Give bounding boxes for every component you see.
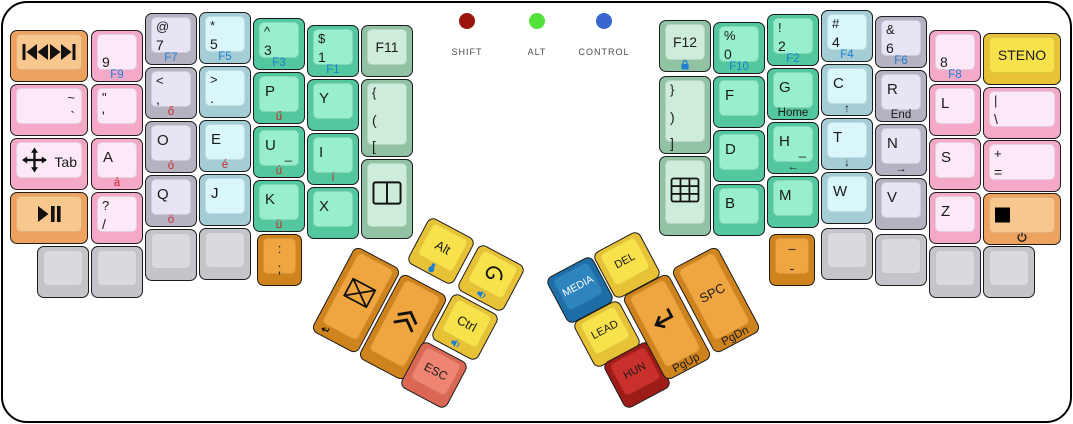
key-b[interactable]: B [713,184,765,236]
key-blank-r3-cap [827,232,867,268]
key-l[interactable]: L [929,84,981,136]
prev-track-icon [22,44,49,60]
key-8[interactable]: 8F8 [929,30,981,82]
key-period-label: > [210,73,218,86]
key-plus-label: = [994,165,1002,179]
key-comma-label: < [156,74,164,87]
key-f11[interactable]: F11 [361,25,413,77]
key-c-label: ↑ [822,104,872,116]
key-g[interactable]: GHome [767,68,819,120]
key-h-label: _ [799,144,806,157]
key-blank-r5[interactable] [929,246,981,298]
key-s-label: S [941,150,951,165]
key-caret-3[interactable]: ^3F3 [253,18,305,70]
key-percent-0-label: % [724,29,736,42]
key-x[interactable]: X [307,187,359,239]
key-tilde-label: ~ [67,91,75,104]
key-at-7-label: F7 [146,53,196,65]
alt-led [529,13,545,29]
key-colon-semicolon[interactable]: :; [257,234,302,286]
key-braces-close[interactable]: })] [659,76,711,154]
key-blank-l1[interactable] [91,246,143,298]
control-led [596,13,612,29]
indicator-alt: ALT [502,13,572,57]
key-keypad[interactable] [659,156,711,236]
key-pipe[interactable]: |\ [983,87,1061,139]
key-a-label: á [92,178,142,190]
key-media-prev-next[interactable] [10,30,88,82]
key-i[interactable]: Ií [307,133,359,185]
key-s[interactable]: S [929,138,981,190]
key-d-label: D [725,142,736,157]
window-split-icon [373,181,402,205]
key-v[interactable]: V [875,178,927,230]
key-f12-label: F12 [660,35,710,49]
key-blank-r3[interactable] [821,228,873,280]
key-u[interactable]: U_ú [253,126,305,178]
key-star-5-label: 5 [210,37,218,51]
key-at-7-label: 7 [156,38,164,52]
indicator-shift: SHIFT [432,13,502,57]
key-dollar-1-label: F1 [308,65,358,77]
key-n-label: N [887,136,898,151]
key-caret-3-label: F3 [254,58,304,70]
key-j-label: J [211,186,219,201]
key-y[interactable]: Y [307,79,359,131]
key-r-label: R [887,82,898,97]
key-blank-r4-cap [881,238,921,274]
key-u-label: U [265,138,276,153]
key-v-label: V [887,190,897,205]
key-9-label: 9 [102,55,110,69]
key-star-5[interactable]: *5F5 [199,12,251,64]
key-8-label: 8 [940,55,948,69]
indicator-control: CONTROL [569,13,639,57]
key-n[interactable]: N→ [875,124,927,176]
key-comma-label: , [156,92,160,106]
key-c-label: C [833,76,844,91]
key-o-label: ó [146,161,196,173]
key-tab-label: Tab [54,155,77,169]
move-icon [22,148,47,173]
next-track-icon [49,44,76,60]
key-j[interactable]: J [199,174,251,226]
key-e[interactable]: Eé [199,120,251,172]
key-window-split[interactable] [361,159,413,239]
key-question[interactable]: ?/ [91,192,143,244]
key-z-label: Z [941,204,950,219]
key-blank-r6-cap [989,250,1029,286]
key-9[interactable]: 9F9 [91,30,143,82]
key-amp-6[interactable]: &6F6 [875,16,927,68]
key-b-label: B [725,196,735,211]
key-pipe-label: \ [994,112,998,126]
key-braces-open-label: [ [372,139,376,153]
shift-led [459,13,475,29]
key-exclaim-2-label: F2 [768,54,818,66]
key-k[interactable]: Kü [253,180,305,232]
control-led-label: CONTROL [569,47,639,57]
key-f[interactable]: F [713,76,765,128]
key-colon-semicolon-label: ; [258,261,301,275]
key-quote-label: " [102,91,107,104]
key-quote-label: ' [102,109,105,123]
key-r[interactable]: REnd [875,70,927,122]
key-braces-close-label: ] [670,136,674,150]
key-g-label: Home [768,108,818,120]
key-dollar-1[interactable]: $1F1 [307,25,359,77]
key-i-label: í [308,173,358,185]
key-percent-0-label: 0 [724,47,732,61]
key-plus[interactable]: += [983,140,1061,192]
key-u-label: _ [285,148,292,161]
key-comma-label: ő [146,107,196,119]
key-k-label: ü [254,220,304,232]
key-u-label: ú [254,166,304,178]
key-hash-4[interactable]: #4F4 [821,10,873,62]
key-n-label: → [876,164,926,176]
key-f12[interactable]: F12 [659,20,711,72]
key-star-5-label: * [210,19,215,32]
key-braces-close-label: ) [670,110,675,124]
key-blank-l2[interactable] [145,229,197,281]
key-f-label: F [725,88,734,103]
key-m[interactable]: M [767,176,819,228]
key-steno[interactable]: STENO [983,33,1061,85]
key-at-7-label: @ [156,20,169,33]
key-blank-l3-cap [205,232,245,268]
key-p-label: ű [254,112,304,124]
key-amp-6-label: 6 [886,41,894,55]
key-stop-power[interactable] [983,193,1061,245]
key-w-label: W [833,184,847,199]
key-blank-l0-cap [43,250,83,286]
key-m-label: M [779,188,792,203]
key-tab[interactable]: Tab [10,138,88,190]
key-dash-label: - [770,261,814,275]
key-colon-semicolon-label: : [258,242,301,255]
key-amp-6-label: F6 [876,56,926,68]
key-a-label: A [103,150,113,165]
key-h-label: H [779,134,790,149]
key-percent-0[interactable]: %0F10 [713,22,765,74]
key-hash-4-label: 4 [832,35,840,49]
key-period[interactable]: >. [199,66,251,118]
key-dash[interactable]: –- [769,234,815,286]
key-h[interactable]: H_← [767,122,819,174]
key-z[interactable]: Z [929,192,981,244]
key-tilde-label: ` [70,109,75,123]
key-braces-open[interactable]: {([ [361,79,413,157]
key-r-label: End [876,110,926,122]
key-p-label: P [265,84,275,99]
key-blank-r4[interactable] [875,234,927,286]
key-exclaim-2-label: 2 [778,39,786,53]
tux-icon [426,261,438,274]
key-question-label: / [102,217,106,231]
key-l-label: L [941,96,949,111]
key-blank-r5-cap [935,250,975,286]
key-blank-l2-cap [151,233,191,269]
key-at-7[interactable]: @7F7 [145,13,197,65]
key-d[interactable]: D [713,130,765,182]
keypad-grid-icon [671,177,700,202]
key-dash-label: – [770,242,814,255]
key-i-label: I [319,145,323,160]
key-e-label: E [211,132,221,147]
key-star-5-label: F5 [200,52,250,64]
key-blank-l0[interactable] [37,246,89,298]
key-t-label: T [833,130,842,145]
key-plus-label: + [994,147,1002,160]
key-tilde[interactable]: ~` [10,84,88,136]
key-period-label: . [210,91,214,105]
key-percent-0-label: F10 [714,62,764,74]
key-hash-4-label: F4 [822,50,872,62]
key-h-label: ← [768,162,818,174]
key-9-label: F9 [92,70,142,82]
key-caret-3-label: ^ [264,25,270,38]
key-q[interactable]: Qö [145,175,197,227]
key-hash-4-label: # [832,17,839,30]
key-f11-label: F11 [362,40,412,54]
key-question-label: ? [102,199,109,212]
key-t[interactable]: T↓ [821,118,873,170]
key-w[interactable]: W [821,172,873,224]
key-braces-open-label: ( [372,113,377,127]
stop-icon [995,208,1010,223]
key-a[interactable]: Aá [91,138,143,190]
keyboard: SHIFT ALT CONTROL ~`Tab9F9"'Aá?/@7F7<,őO… [0,0,1073,424]
key-dollar-1-label: 1 [318,50,326,64]
key-play-pause[interactable] [10,192,88,244]
key-q-label: Q [157,187,169,202]
key-e-label: é [200,160,250,172]
key-pipe-label: | [994,94,997,107]
lock-icon [681,59,690,70]
key-x-label: X [319,199,329,214]
key-t-label: ↓ [822,158,872,170]
key-braces-close-label: } [670,83,674,96]
key-amp-6-label: & [886,23,895,36]
key-caret-3-label: 3 [264,43,272,57]
key-o[interactable]: Oó [145,121,197,173]
key-blank-r6[interactable] [983,246,1035,298]
key-c[interactable]: C↑ [821,64,873,116]
key-k-label: K [265,192,275,207]
key-blank-l1-cap [97,250,137,286]
key-quote[interactable]: "' [91,84,143,136]
key-dollar-1-label: $ [318,32,325,45]
key-p[interactable]: Pű [253,72,305,124]
key-pipe-cap [989,91,1055,127]
key-exclaim-2[interactable]: !2F2 [767,14,819,66]
key-comma[interactable]: <,ő [145,67,197,119]
key-exclaim-2-label: ! [778,21,782,34]
key-q-label: ö [146,215,196,227]
key-y-label: Y [319,91,329,106]
play-pause-icon [37,206,61,223]
key-o-label: O [157,133,169,148]
key-8-label: F8 [930,70,980,82]
key-g-label: G [779,80,791,95]
key-steno-label: STENO [984,48,1060,62]
key-braces-open-label: { [372,86,376,99]
key-blank-l3[interactable] [199,228,251,280]
shift-led-label: SHIFT [432,47,502,57]
alt-led-label: ALT [502,47,572,57]
power-icon [1017,232,1028,243]
